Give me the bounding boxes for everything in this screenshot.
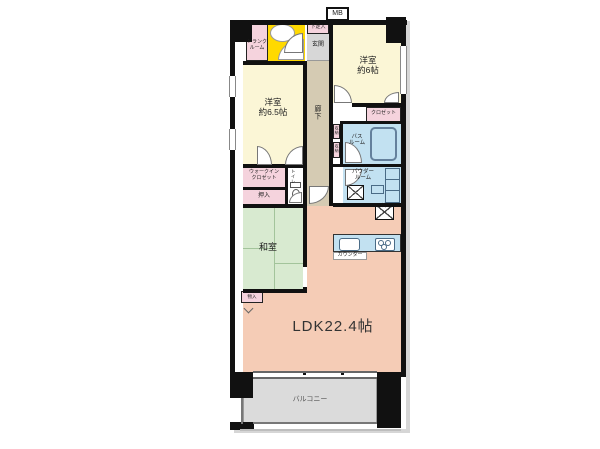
window-west65-upper [229,76,236,97]
bathtub-icon [370,127,397,161]
wall-wic-oshiire-divider [243,187,285,190]
window-west6-right [400,46,407,94]
window-west65-lower [229,129,236,150]
wall-bath-powder-divider [333,164,401,167]
room-ldk-right [307,206,401,372]
toilet-label: トイレ [291,169,296,184]
tatami-line [274,263,303,264]
ldk-label: LDK22.4帖 [278,318,388,335]
shoebox-label: 下足入 [307,25,329,31]
west65-label: 洋室 約6.5帖 [244,98,302,118]
wall-hall-right [329,23,333,206]
wall-outer-left [230,20,235,377]
window-ldk-balcony [253,371,377,379]
sink-icon [339,238,360,251]
washing-machine-box [347,185,364,200]
genkan-step-line [307,60,329,61]
pillar-bottom-right [377,372,401,428]
oshiire-label: 押入 [243,193,285,200]
kitchen-counter [333,234,401,252]
washitsu-label: 和室 [248,242,288,252]
window-tick [341,373,344,375]
wall-washitsu-top [243,204,305,208]
west6-label: 洋室 約6帖 [340,56,396,76]
wall-bath-top [340,121,401,124]
monoire-label: 物入 [241,294,263,299]
genkan-label: 玄関 [306,42,330,49]
wall-top-row-bottom [243,61,307,65]
burner [381,244,387,250]
wall-toilet-left [285,164,288,204]
hallway-label: 廊下 [313,105,321,120]
floor-plan: 冷 [0,0,600,449]
wall-washitsu-bottom [243,289,307,293]
vanity-shelf-line [386,179,399,180]
closet-label: クロゼット [366,111,401,117]
balcony-left-line [241,398,243,424]
wall-hall-left [303,61,307,267]
storage-b-label: 収納 [334,144,339,153]
meter-box-label: MB [326,10,349,18]
wall-powder-bottom [333,203,401,207]
kitchen-cabinet [371,185,384,194]
wall-west6-bottom [352,103,401,107]
balcony-outer-edge-line [240,429,401,431]
trunk-room-label: トランク ルーム [245,40,269,52]
wall-bath-left [340,121,343,166]
pillar-top-right [386,17,406,43]
balcony-label: バルコニー [280,396,340,404]
vanity-shelf-line [386,190,399,191]
wic-label: ウォークイン クロゼット [243,170,285,182]
balcony-inner-bottom-line [253,422,377,424]
window-tick [303,373,306,375]
bath-label: バス ルーム [344,134,370,147]
stove-icon [375,238,395,251]
room-hallway [307,61,329,206]
storage-a-label: 収納 [334,126,339,135]
pillar-bottom-left [230,372,253,398]
counter-label: カウンター [333,253,367,259]
vanity-cabinet [385,168,400,203]
powder-label: パウダー ルーム [346,169,380,182]
